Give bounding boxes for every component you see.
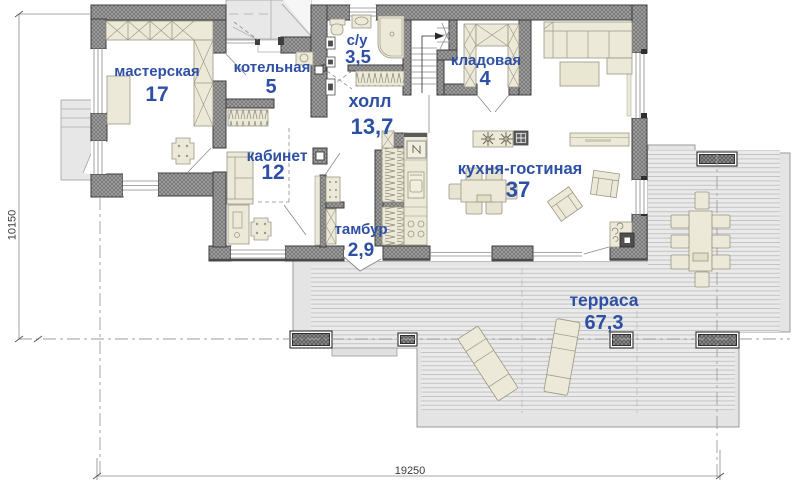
svg-text:37: 37	[506, 177, 530, 202]
svg-text:мастерская: мастерская	[114, 63, 199, 80]
svg-text:13,7: 13,7	[351, 114, 394, 139]
svg-text:котельная: котельная	[234, 59, 311, 76]
svg-text:67,3: 67,3	[585, 312, 624, 334]
svg-text:5: 5	[265, 76, 276, 98]
svg-text:кухня-гостиная: кухня-гостиная	[458, 160, 583, 178]
svg-text:10150: 10150	[7, 210, 19, 241]
svg-text:17: 17	[145, 83, 168, 106]
svg-text:19250: 19250	[395, 465, 426, 477]
svg-text:4: 4	[479, 68, 491, 90]
svg-text:холл: холл	[349, 91, 392, 111]
svg-text:2,9: 2,9	[348, 240, 374, 261]
svg-text:тамбур: тамбур	[335, 221, 388, 238]
svg-text:12: 12	[261, 161, 284, 184]
svg-text:кладовая: кладовая	[451, 52, 521, 69]
svg-text:3,5: 3,5	[345, 46, 371, 67]
svg-text:терраса: терраса	[569, 290, 638, 310]
